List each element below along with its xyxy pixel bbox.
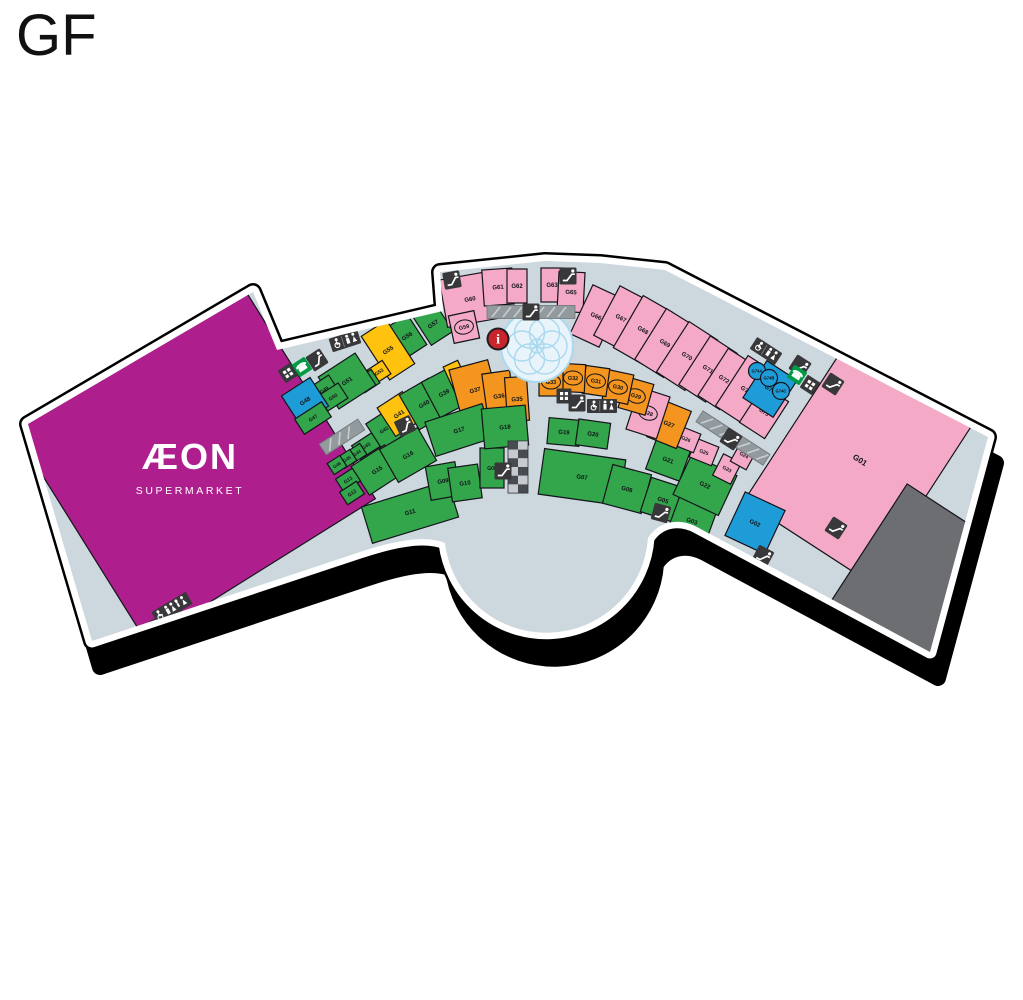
atm-icon bbox=[557, 389, 572, 404]
kiosk-g74b[interactable]: G74B bbox=[761, 370, 778, 387]
unit-g31[interactable]: G31 bbox=[582, 365, 610, 396]
kiosk-g74c[interactable]: G74C bbox=[773, 383, 790, 400]
mall-map: G01G02G57G56G55G53G52G51G49G50G48G47G43G… bbox=[0, 0, 1023, 1000]
unit-g10[interactable]: G10 bbox=[448, 464, 482, 502]
restroom-icon bbox=[587, 399, 617, 413]
fountain bbox=[501, 310, 573, 382]
unit-g62[interactable]: G62 bbox=[507, 269, 527, 303]
floor-plan-page: GF G01G02G57G56G55G53G52G51G49G50G48G47G… bbox=[0, 0, 1023, 1000]
escalator-icon bbox=[560, 268, 577, 285]
escalator-icon bbox=[523, 304, 540, 321]
information-icon: i bbox=[487, 328, 510, 351]
escalator-icon bbox=[442, 270, 462, 290]
unit-g59[interactable]: G59 bbox=[448, 311, 479, 344]
unit-g20[interactable]: G20 bbox=[575, 419, 610, 449]
escalator-icon bbox=[495, 463, 512, 480]
